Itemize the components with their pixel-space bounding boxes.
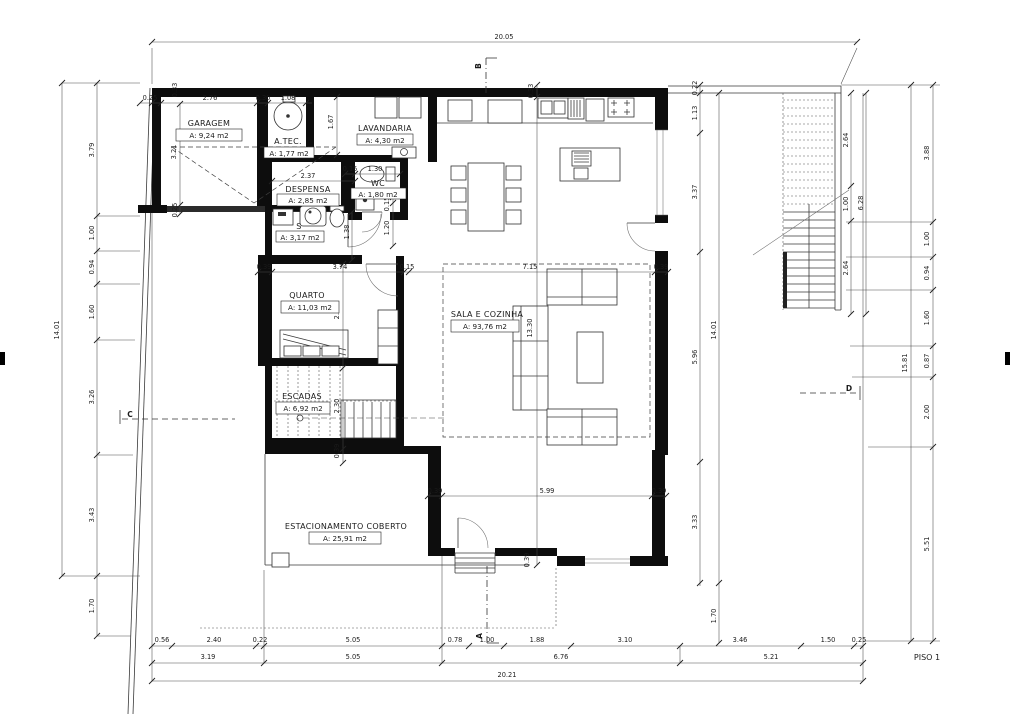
dim: 1.67 [327, 115, 335, 130]
dim: 3.79 [88, 143, 96, 158]
dim: 0.22 [691, 81, 699, 96]
dim: 1.13 [691, 106, 699, 121]
dim: 2.64 [842, 133, 850, 148]
room-lavandaria-name: LAVANDARIA [358, 124, 412, 133]
dim: 0.25 [143, 94, 158, 102]
dim: 5.05 [346, 636, 361, 644]
room-escadas-area: A: 6,92 m2 [283, 404, 322, 413]
dim: 0.25 [852, 636, 867, 644]
dim: 0.33 [527, 84, 535, 99]
dim: 0.33 [171, 83, 179, 98]
dim: 5.51 [923, 537, 931, 552]
drainer [568, 98, 584, 119]
dim-stair-overall: 6.28 [857, 196, 865, 211]
dishwasher [586, 99, 604, 121]
room-quarto-name: QUARTO [289, 291, 325, 300]
dim: 1.20 [383, 221, 391, 236]
fridge [448, 100, 472, 121]
right-edge-mark [1005, 352, 1010, 365]
dim: 0.25 [171, 203, 179, 218]
dim: 2.37 [301, 172, 316, 180]
sofa-bottom [547, 409, 617, 445]
room-atec-name: A.TEC. [274, 137, 302, 146]
section-a-label: A [475, 633, 484, 639]
floor-plan-drawing: 20.05 0.25 2.76 0.30 1.08 0.33 0.33 14.0… [0, 0, 1010, 720]
dim: 1.00 [923, 232, 931, 247]
dim-inner-overall: 14.01 [710, 321, 718, 340]
room-s-area: A: 3,17 m2 [280, 233, 319, 242]
s-toilet [330, 206, 344, 227]
washing-machine [375, 97, 397, 118]
dim: 1.00 [88, 226, 96, 241]
dim: 6.76 [554, 653, 569, 661]
dim: 5.21 [764, 653, 779, 661]
dim: 7.15 [523, 263, 538, 271]
dim: 3.19 [201, 653, 216, 661]
pillar [272, 553, 289, 567]
section-markers: B A C D [120, 58, 860, 643]
room-estacionamento-name: ESTACIONAMENTO COBERTO [285, 522, 407, 531]
room-s-name: S [296, 222, 301, 231]
kitchen-fixtures [437, 98, 653, 231]
dim: 0.87 [923, 354, 931, 369]
dim: 5.96 [691, 350, 699, 365]
room-escadas-name: ESCADAS [282, 392, 322, 401]
dim: 1.30 [368, 165, 383, 173]
dim: 0.78 [448, 636, 463, 644]
room-wc-name: WC [371, 179, 385, 188]
room-atec-area: A: 1,77 m2 [269, 149, 308, 158]
dim: 0.15 [400, 263, 415, 271]
dim: 3.88 [923, 146, 931, 161]
dim: 0.39 [652, 487, 667, 495]
room-quarto-area: A: 11,03 m2 [288, 303, 332, 312]
room-garagem-area: A: 9,24 m2 [189, 131, 228, 140]
dim-bottom-overall: 20.21 [498, 671, 517, 679]
dim: 0.39 [654, 263, 669, 271]
wc-door-arc [362, 212, 382, 232]
dim: 2.64 [842, 261, 850, 276]
s-vanity [273, 209, 293, 225]
dim: 0.39 [257, 263, 272, 271]
dim-top-overall: 20.05 [495, 33, 514, 41]
east-window [655, 130, 668, 215]
dim: 5.05 [346, 653, 361, 661]
stove [608, 98, 634, 117]
kitchen-island [560, 148, 620, 181]
room-estacionamento-area: A: 25,91 m2 [323, 534, 367, 543]
dim: 1.70 [710, 609, 718, 624]
dim: 1.88 [530, 636, 545, 644]
dim: 0.30 [256, 94, 271, 102]
dining-table [451, 163, 521, 231]
room-despensa-area: A: 2,85 m2 [288, 196, 327, 205]
dryer [399, 97, 421, 118]
dim: 1.70 [88, 599, 96, 614]
section-b-label: B [474, 63, 483, 69]
dim: 3.37 [691, 185, 699, 200]
dim: 0.15 [343, 165, 358, 173]
dim-left-overall: 14.01 [53, 321, 61, 340]
dim: 1.08 [281, 94, 296, 102]
dim: 0.94 [88, 260, 96, 275]
east-door-arc [627, 223, 655, 251]
dim: 3.46 [733, 636, 748, 644]
wardrobe [378, 310, 398, 364]
dim: 0.56 [155, 636, 170, 644]
site-boundary [0, 88, 1010, 714]
south-window [585, 559, 630, 563]
laundry-sink [392, 147, 416, 158]
dim: 1.60 [923, 311, 931, 326]
dim: 2.40 [207, 636, 222, 644]
dim: 1.00 [842, 197, 850, 212]
dim: 13.30 [526, 319, 534, 338]
dim: 3.43 [88, 508, 96, 523]
kitchen-cabinet [488, 100, 522, 123]
floor-plan-page: 20.05 0.25 2.76 0.30 1.08 0.33 0.33 14.0… [0, 0, 1010, 720]
left-edge-mark [0, 352, 5, 365]
living-room-furniture [443, 264, 650, 445]
dim: 3.21 [170, 145, 178, 160]
room-sala-area: A: 93,76 m2 [463, 322, 507, 331]
dim: 3.10 [618, 636, 633, 644]
page-title: PISO 1 [914, 653, 940, 662]
dim: 0.22 [253, 636, 268, 644]
dim: 1.60 [88, 305, 96, 320]
section-c-label: C [127, 410, 133, 419]
coffee-table [577, 332, 603, 383]
dim: 3.26 [88, 390, 96, 405]
dim: 0.39 [523, 553, 531, 568]
dim-right-overall: 15.81 [901, 354, 909, 373]
dim: 2.00 [923, 405, 931, 420]
s-basin [300, 206, 326, 226]
dim: 1.50 [821, 636, 836, 644]
dim: 0.39 [333, 444, 341, 459]
dim: 1.38 [343, 225, 351, 240]
dim: 3.74 [333, 263, 348, 271]
dim: 2.76 [203, 94, 218, 102]
room-sala-name: SALA E COZINHA [451, 310, 524, 319]
dim: 3.33 [691, 515, 699, 530]
sofa-top [547, 269, 617, 305]
quarto-door-arc [366, 264, 398, 296]
room-garagem-name: GARAGEM [188, 119, 231, 128]
entry-door-arc [458, 518, 488, 548]
section-d-label: D [846, 384, 852, 393]
room-lavandaria-area: A: 4,30 m2 [365, 136, 404, 145]
dim: 5.99 [540, 487, 555, 495]
dim: 0.39 [428, 487, 443, 495]
dim: 0.94 [923, 266, 931, 281]
room-despensa-name: DESPENSA [285, 185, 330, 194]
entry-steps [455, 553, 495, 573]
room-wc-area: A: 1,80 m2 [358, 190, 397, 199]
dim: 2.30 [333, 399, 341, 414]
